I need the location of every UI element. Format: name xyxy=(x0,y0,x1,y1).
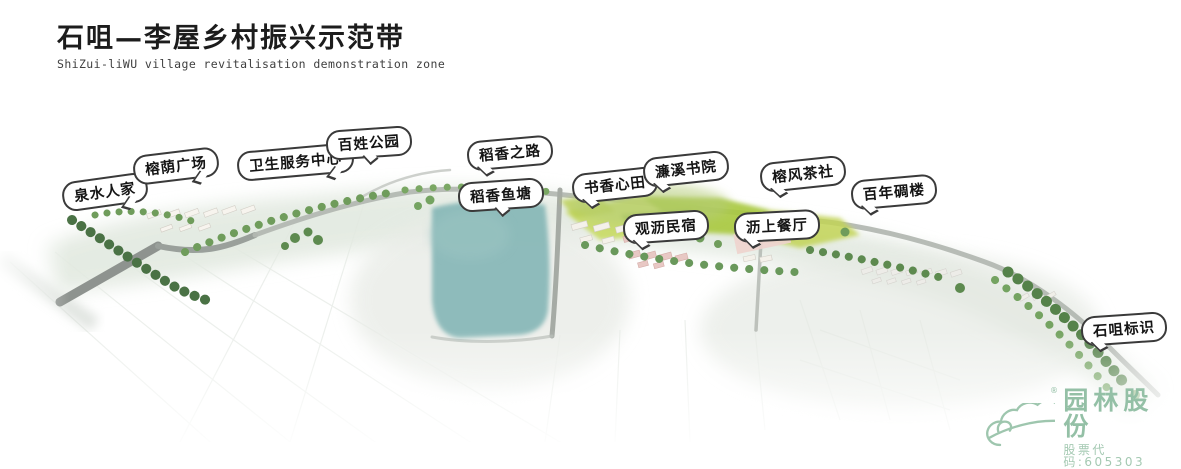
park-lawn xyxy=(570,183,730,227)
village-buildings-bridge xyxy=(478,144,531,173)
logo-company-name: 园林股份 xyxy=(1063,388,1181,441)
page-subtitle: ShiZui-liWU village revitalisation demon… xyxy=(57,57,445,71)
page-title: 石咀—李屋乡村振兴示范带 xyxy=(57,24,445,54)
logo-stock-code: 股票代码:605303 xyxy=(1063,444,1181,469)
registered-trademark: ® xyxy=(1050,386,1058,395)
pond-highlight xyxy=(430,210,510,260)
company-logo: ® 园林股份 股票代码:605303 xyxy=(984,388,1181,469)
header: 石咀—李屋乡村振兴示范带 ShiZui-liWU village revital… xyxy=(57,24,445,71)
logo-text: 园林股份 股票代码:605303 xyxy=(1063,388,1181,469)
cloud-hill-logo-icon xyxy=(984,403,1055,453)
fade-right xyxy=(1110,0,1181,442)
